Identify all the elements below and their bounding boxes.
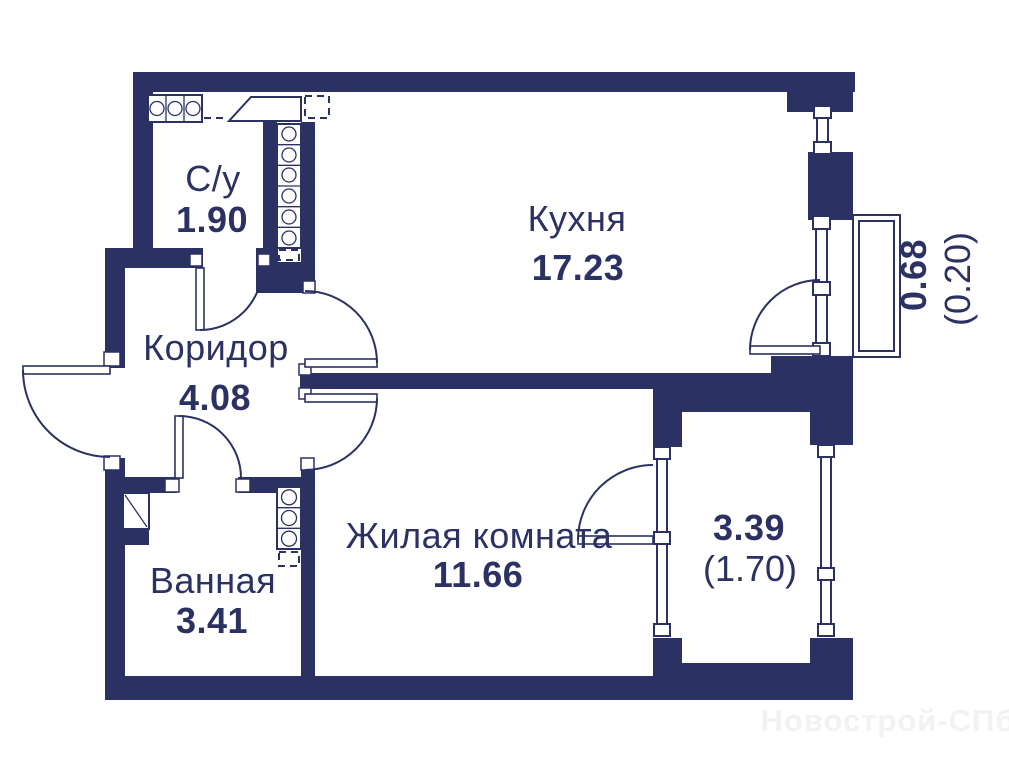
- room-label-bathroom: Ванная 3.41: [150, 560, 276, 641]
- bathroom-door-arc: [179, 416, 241, 478]
- wall-bathroom-right: [301, 470, 315, 676]
- wall-bottom: [105, 676, 853, 700]
- entrance-door-arc: [23, 370, 110, 457]
- wall-wc-shaft: [263, 122, 277, 252]
- floor-plan-page: С/у 1.90 Кухня 17.23 Коридор 4.08 Ванная…: [0, 0, 1009, 768]
- room-area-secondary-loggia: (1.70): [703, 548, 797, 589]
- window-living-loggia: [654, 447, 670, 636]
- washing-machines-symbol: [148, 95, 202, 122]
- bathroom-niche-symbol: [123, 493, 149, 529]
- room-label-kitchen: Кухня 17.23: [528, 198, 627, 288]
- jamb-wc-right: [258, 254, 270, 266]
- window-kitchen-balcony: [813, 216, 830, 358]
- kitchen-balcony-door-arc: [750, 280, 820, 350]
- room-area-corridor: 4.08: [179, 377, 251, 418]
- corridor-kitchen-door-arc: [305, 291, 377, 363]
- ventilation-shaft-symbol-wc: [277, 124, 301, 248]
- watermark-text: Новострой-СПб: [761, 703, 1009, 738]
- wall-loggia-right-upper: [810, 373, 853, 445]
- room-name-bathroom: Ванная: [150, 560, 276, 601]
- floor-plan: С/у 1.90 Кухня 17.23 Коридор 4.08 Ванная…: [0, 0, 1009, 768]
- corridor-kitchen-door-leaf: [305, 359, 377, 367]
- jamb-bathroom-right: [236, 479, 250, 492]
- kitchen-balcony-door-leaf: [750, 346, 820, 354]
- room-label-wc: С/у 1.90: [176, 158, 248, 240]
- sink-counter-symbol: [229, 97, 301, 121]
- room-name-kitchen: Кухня: [528, 198, 627, 239]
- jamb-bathroom-left: [165, 479, 179, 492]
- jamb-entrance-bottom: [104, 456, 120, 470]
- bathroom-door-leaf: [175, 416, 183, 478]
- entrance-door-leaf: [23, 366, 110, 374]
- kitchen-balcony-door: [750, 280, 820, 354]
- corridor-living-door-leaf: [305, 394, 377, 402]
- ventilation-shaft-symbol-bathroom: [277, 487, 301, 549]
- window-loggia-right: [818, 445, 834, 636]
- wall-loggia-right-lower: [810, 638, 853, 676]
- room-name-living-room: Жилая комната: [346, 515, 613, 556]
- wall-top: [133, 72, 855, 92]
- room-name-wc: С/у: [185, 158, 241, 199]
- wall-loggia-bottom: [682, 663, 810, 676]
- wall-divider-kitchen-living: [300, 373, 853, 389]
- room-area-secondary-balcony: (0.20): [937, 232, 978, 326]
- room-label-corridor: Коридор 4.08: [143, 327, 289, 418]
- wall-living-right-lower: [653, 638, 682, 676]
- dashed-shaft-marker-bathroom: [279, 552, 299, 566]
- room-label-loggia: 3.39 (1.70): [703, 507, 797, 589]
- dashed-corner-marker: [305, 96, 329, 118]
- room-name-corridor: Коридор: [143, 327, 289, 368]
- wc-door-leaf: [196, 268, 204, 330]
- wall-living-right-upper: [653, 373, 682, 447]
- dashed-shaft-marker-wc: [279, 250, 299, 260]
- wall-right-upper: [808, 152, 853, 220]
- window-kitchen-small: [814, 106, 831, 154]
- bathroom-door: [175, 416, 241, 478]
- corridor-living-door-arc: [305, 398, 377, 470]
- wc-door-arc: [200, 268, 262, 330]
- room-area-wc: 1.90: [176, 199, 248, 240]
- room-label-living-room: Жилая комната 11.66: [346, 515, 613, 595]
- entrance-door: [23, 366, 110, 457]
- jamb-wc-left: [190, 254, 202, 266]
- jamb-entrance-top: [104, 352, 120, 366]
- room-area-balcony: 0.68: [893, 239, 934, 311]
- room-area-loggia: 3.39: [713, 507, 785, 548]
- wall-kitchen-left: [301, 122, 315, 293]
- jamb-living-door-bottom: [301, 458, 314, 470]
- corridor-living-door: [305, 394, 377, 470]
- wc-door: [196, 268, 262, 330]
- room-area-bathroom: 3.41: [176, 600, 248, 641]
- room-area-living-room: 11.66: [433, 554, 524, 595]
- room-label-balcony: 0.68 (0.20): [893, 232, 978, 326]
- corridor-kitchen-door: [305, 291, 377, 367]
- room-area-kitchen: 17.23: [532, 247, 625, 288]
- wall-niche-block: [123, 529, 149, 545]
